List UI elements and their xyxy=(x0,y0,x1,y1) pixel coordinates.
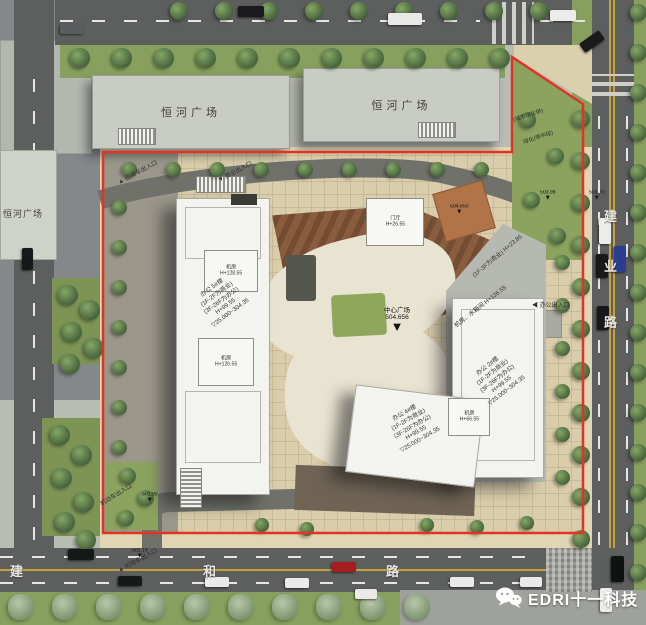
wechat-icon xyxy=(495,586,523,610)
tree xyxy=(80,300,100,320)
tree xyxy=(74,492,94,512)
tree xyxy=(364,48,384,68)
tree xyxy=(430,162,445,177)
tree xyxy=(572,404,590,422)
tree xyxy=(170,2,188,20)
road-name-char: 建 xyxy=(10,561,23,580)
tree xyxy=(140,594,166,620)
tree xyxy=(238,48,258,68)
watermark-logo: EDRI十一科技 xyxy=(495,586,638,610)
car xyxy=(611,556,624,582)
tree xyxy=(440,2,458,20)
road-name-char: 和 xyxy=(203,561,216,580)
car xyxy=(285,578,309,588)
tree xyxy=(470,520,484,534)
tree xyxy=(630,364,646,381)
tree xyxy=(72,445,92,465)
tree xyxy=(52,468,72,488)
building-label: 恒河广场 xyxy=(372,97,432,113)
tree xyxy=(490,48,510,68)
tree xyxy=(112,200,127,215)
site-plan: 恒河广场 恒河广场 恒河广场 机房H+128.55 机房H+126.55 门厅H… xyxy=(0,0,646,625)
tree xyxy=(272,594,298,620)
car xyxy=(550,10,576,21)
tree xyxy=(548,148,564,164)
tree xyxy=(342,162,357,177)
crosswalk xyxy=(546,544,592,592)
center-line xyxy=(0,569,592,571)
tree xyxy=(118,510,134,526)
core-block xyxy=(286,255,316,301)
tree xyxy=(76,530,96,550)
road-name-char: 业 xyxy=(604,256,617,275)
road-name-char: 建 xyxy=(604,206,617,225)
tree xyxy=(572,194,590,212)
tree xyxy=(630,564,646,581)
tree xyxy=(572,362,590,380)
building-label: 恒河广场 xyxy=(161,104,221,120)
elevation-marker: 501.90▼ xyxy=(142,492,158,502)
tree xyxy=(448,48,468,68)
tree xyxy=(166,162,181,177)
tree xyxy=(572,320,590,338)
tree xyxy=(474,162,489,177)
elevation-marker: 503.70▼ xyxy=(589,190,605,200)
machine-room-box: 机房H+126.55 xyxy=(198,338,254,386)
tree xyxy=(386,162,401,177)
car xyxy=(238,6,264,17)
tree xyxy=(112,440,127,455)
tree xyxy=(630,404,646,421)
road-name-char: 路 xyxy=(604,312,617,331)
lane-line xyxy=(33,60,35,540)
car xyxy=(60,24,84,34)
logo-text: EDRI十一科技 xyxy=(528,586,638,610)
tree xyxy=(50,425,70,445)
car xyxy=(118,576,142,586)
tree xyxy=(112,400,127,415)
tree xyxy=(550,228,566,244)
central-lawn xyxy=(331,293,387,338)
tree xyxy=(316,594,342,620)
tree xyxy=(630,524,646,541)
tree xyxy=(112,360,127,375)
elevation-marker: 504.650▼ xyxy=(450,204,468,214)
tree xyxy=(300,522,314,536)
tree xyxy=(572,488,590,506)
tree xyxy=(255,518,269,532)
tree xyxy=(555,384,570,399)
tree xyxy=(298,162,313,177)
car xyxy=(388,13,422,25)
tree xyxy=(420,518,434,532)
tree xyxy=(555,470,570,485)
tree xyxy=(8,594,34,620)
tree xyxy=(524,192,540,208)
tree xyxy=(555,341,570,356)
tree xyxy=(555,427,570,442)
car xyxy=(68,549,94,560)
tree xyxy=(62,322,82,342)
tree xyxy=(630,444,646,461)
elevator-bulkhead xyxy=(231,194,257,205)
elevation-marker: 503.98▼ xyxy=(540,190,556,200)
tree xyxy=(630,204,646,221)
tree xyxy=(215,2,233,20)
tree xyxy=(112,320,127,335)
lane-line xyxy=(626,100,628,545)
tree xyxy=(630,44,646,61)
tree xyxy=(70,48,90,68)
tree xyxy=(154,48,174,68)
tree xyxy=(280,48,300,68)
henghe-plaza-south: 恒河广场 xyxy=(0,150,57,260)
tree xyxy=(572,530,590,548)
roof-detail xyxy=(185,391,261,463)
tree xyxy=(572,236,590,254)
tree xyxy=(630,484,646,501)
car xyxy=(22,248,33,270)
car xyxy=(332,562,356,572)
tree xyxy=(630,284,646,301)
tree xyxy=(485,2,503,20)
tree xyxy=(112,48,132,68)
tree xyxy=(630,324,646,341)
tree xyxy=(630,164,646,181)
tree xyxy=(58,285,78,305)
road-name-char: 路 xyxy=(386,561,399,580)
building-label: 恒河广场 xyxy=(3,207,43,220)
tree xyxy=(572,110,590,128)
tree xyxy=(112,240,127,255)
tree xyxy=(84,338,104,358)
tree xyxy=(228,594,254,620)
henghe-plaza-east: 恒河广场 xyxy=(303,68,500,142)
crosswalk xyxy=(592,74,634,96)
tree xyxy=(520,516,534,530)
tree xyxy=(630,4,646,21)
tree xyxy=(55,512,75,532)
tree xyxy=(350,2,368,20)
tree xyxy=(555,255,570,270)
lobby-label: 门厅H+26.55 xyxy=(385,216,404,228)
elevation-marker: 中心广场504.656▼ xyxy=(384,308,410,332)
tree xyxy=(322,48,342,68)
tree xyxy=(630,244,646,261)
tree xyxy=(406,48,426,68)
tree xyxy=(630,84,646,101)
tree xyxy=(254,162,269,177)
tree xyxy=(52,594,78,620)
tree xyxy=(112,280,127,295)
tree xyxy=(96,594,122,620)
car xyxy=(355,589,377,599)
tree xyxy=(60,354,80,374)
tree xyxy=(404,594,430,620)
tree xyxy=(196,48,216,68)
ramp xyxy=(180,468,202,508)
tree xyxy=(572,152,590,170)
tree xyxy=(184,594,210,620)
tree xyxy=(630,124,646,141)
roof-vent xyxy=(418,122,456,138)
tree xyxy=(572,278,590,296)
car xyxy=(450,577,474,587)
tree xyxy=(572,446,590,464)
tree xyxy=(305,2,323,20)
machine-room-label: 机房H+126.55 xyxy=(215,356,237,368)
tree xyxy=(530,2,548,20)
lobby-box: 门厅H+26.55 xyxy=(366,198,424,246)
roof-vent xyxy=(118,128,156,145)
entrance-label: ◀ 办公出入口 xyxy=(532,300,570,309)
